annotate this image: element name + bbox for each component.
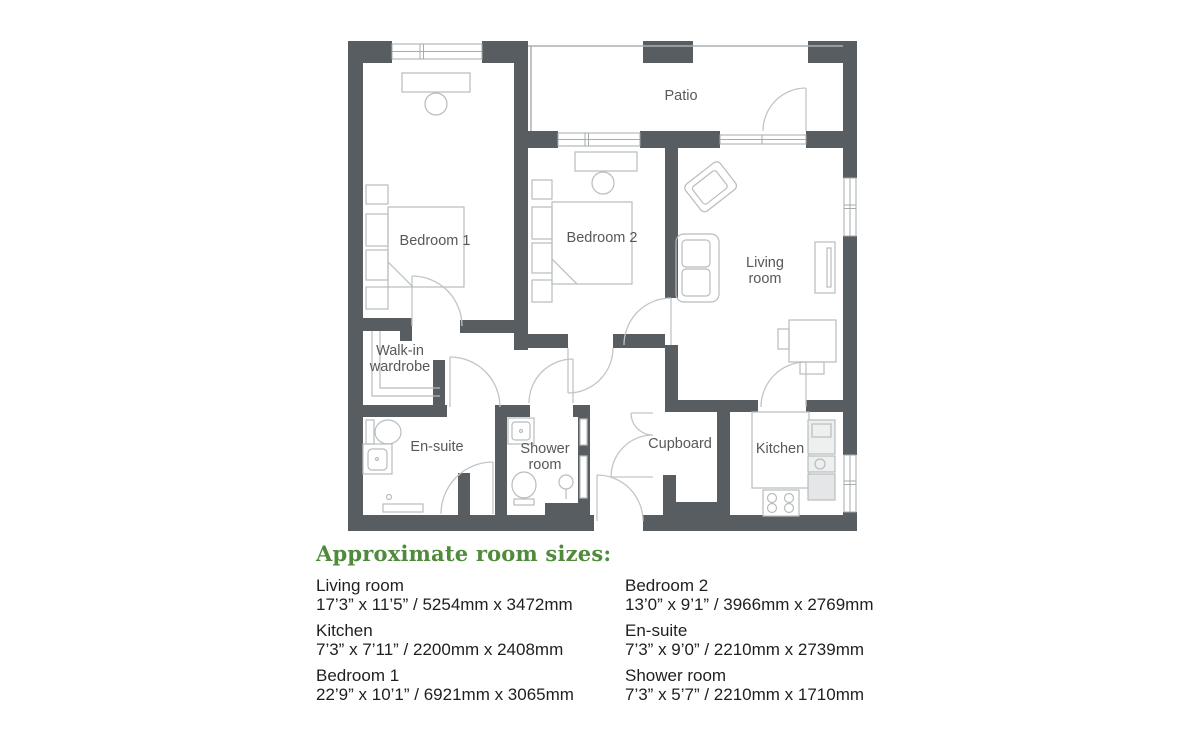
window-kitchen xyxy=(844,455,856,512)
toilet-cistern xyxy=(366,420,374,444)
tv-unit xyxy=(815,242,835,293)
bed-fold xyxy=(388,262,413,287)
sink-drain xyxy=(376,458,379,461)
bedside-unit xyxy=(366,250,388,280)
bedside-unit xyxy=(366,185,388,204)
size-item-name: Shower room xyxy=(625,666,874,685)
bedside-unit xyxy=(532,280,552,302)
kitchen-appliance xyxy=(808,474,835,500)
room-label-bedroom2: Bedroom 2 xyxy=(567,230,638,246)
desk xyxy=(575,152,637,171)
desk-pedestal xyxy=(800,362,824,374)
bedside-unit xyxy=(532,243,552,273)
wall-cupboard-left xyxy=(663,475,676,505)
size-item: Bedroom 2 13’0” x 9’1” / 3966mm x 2769mm xyxy=(625,576,874,614)
shower-label-line1: Shower xyxy=(520,441,569,457)
wall-ensuite-right xyxy=(458,473,470,517)
size-item-dimensions: 17’3” x 11’5” / 5254mm x 3472mm xyxy=(316,595,625,614)
wall-b1-bottom-right xyxy=(460,320,514,333)
bedroom1-furniture xyxy=(366,73,470,309)
living-room-label-line2: room xyxy=(746,271,784,287)
floorplan-page: Patio Bedroom 1 Bedroom 2 Living room Wa… xyxy=(0,0,1200,742)
doors xyxy=(412,88,806,521)
wardrobe-label-line2: wardrobe xyxy=(370,359,430,375)
wall-bottom-left xyxy=(348,515,594,531)
wall-wardrobe-top xyxy=(362,318,412,331)
room-label-patio: Patio xyxy=(664,88,697,104)
door-bedroom2 xyxy=(568,348,613,393)
floor-drain xyxy=(387,495,392,500)
desk-chair xyxy=(592,172,614,194)
size-item: Living room 17’3” x 11’5” / 5254mm x 347… xyxy=(316,576,625,614)
bedside-unit xyxy=(532,207,552,239)
wall-right-mid xyxy=(843,236,857,455)
living-room-label-line1: Living xyxy=(746,255,784,271)
sink-basin xyxy=(512,422,530,440)
bath-mat xyxy=(383,504,423,512)
wall-ensuite-top xyxy=(348,405,447,417)
desk xyxy=(789,320,836,362)
bed-fold xyxy=(552,259,577,284)
room-sizes-heading: Approximate room sizes: xyxy=(316,541,1086,566)
size-item: Shower room 7’3” x 5’7” / 2210mm x 1710m… xyxy=(625,666,874,704)
size-item-name: Living room xyxy=(316,576,625,595)
shower-label-line2: room xyxy=(520,457,569,473)
room-label-en-suite: En-suite xyxy=(410,439,463,455)
door-kitchen xyxy=(761,362,806,407)
towel-rail xyxy=(580,456,587,498)
toilet-cistern xyxy=(514,499,534,505)
size-item-dimensions: 7’3” x 9’0” / 2210mm x 2739mm xyxy=(625,640,874,659)
size-item-dimensions: 7’3” x 5’7” / 2210mm x 1710mm xyxy=(625,685,874,704)
bedside-unit xyxy=(366,214,388,246)
desk xyxy=(402,73,470,92)
bedside-unit xyxy=(532,180,552,199)
tv-screen xyxy=(827,248,831,287)
size-item-dimensions: 22’9” x 10’1” / 6921mm x 3065mm xyxy=(316,685,625,704)
size-item-dimensions: 7’3” x 7’11” / 2200mm x 2408mm xyxy=(316,640,625,659)
toilet-icon xyxy=(375,420,401,444)
room-sizes-column-left: Living room 17’3” x 11’5” / 5254mm x 347… xyxy=(316,576,625,711)
wall-top-b1-left xyxy=(348,41,392,63)
wall-right-bottom xyxy=(843,512,857,531)
wall-patio-bottom-3 xyxy=(806,131,843,148)
size-item: Bedroom 1 22’9” x 10’1” / 6921mm x 3065m… xyxy=(316,666,625,704)
armchair xyxy=(683,160,739,214)
wall-right-top xyxy=(843,41,857,178)
wall-cupboard-right xyxy=(717,412,730,515)
door-hall-corridor xyxy=(450,357,500,407)
wall-top-right-stub xyxy=(808,41,843,63)
sofa-cushion xyxy=(682,240,710,267)
room-sizes-block: Approximate room sizes: Living room 17’3… xyxy=(316,541,1086,711)
room-label-shower-room: Shower room xyxy=(520,441,569,473)
wall-living-bottom xyxy=(665,400,758,412)
wall-kitchen-top-right xyxy=(806,400,843,412)
window-bedroom2 xyxy=(558,133,640,146)
sink-drain xyxy=(520,430,523,433)
wall-wardrobe-return xyxy=(400,331,412,341)
size-item-name: Bedroom 2 xyxy=(625,576,874,595)
room-label-kitchen: Kitchen xyxy=(756,441,804,457)
towel-rail xyxy=(580,419,587,445)
size-item-name: Kitchen xyxy=(316,621,625,640)
room-label-bedroom1: Bedroom 1 xyxy=(400,233,471,249)
room-sizes-column-right: Bedroom 2 13’0” x 9’1” / 3966mm x 2769mm… xyxy=(625,576,874,711)
wall-b2-bottom-right xyxy=(613,334,665,348)
door-cupboard-lower xyxy=(611,435,653,477)
size-item-name: Bedroom 1 xyxy=(316,666,625,685)
wardrobe-label-line1: Walk-in xyxy=(370,343,430,359)
size-item: Kitchen 7’3” x 7’11” / 2200mm x 2408mm xyxy=(316,621,625,659)
desk-chair xyxy=(425,93,447,115)
room-label-cupboard: Cupboard xyxy=(648,436,712,452)
desk-chair xyxy=(778,329,789,349)
wall-left-outer xyxy=(348,41,363,531)
door-patio xyxy=(763,88,806,131)
wall-shower-bottom-step xyxy=(545,503,590,517)
bedside-unit xyxy=(366,287,388,309)
door-bedroom1 xyxy=(412,276,462,326)
wall-shower-left xyxy=(495,417,507,515)
toilet-icon xyxy=(512,472,536,498)
shower-head xyxy=(559,475,573,489)
size-item-dimensions: 13’0” x 9’1” / 3966mm x 2769mm xyxy=(625,595,874,614)
window-living-room xyxy=(844,178,856,236)
size-item-name: En-suite xyxy=(625,621,874,640)
room-sizes-columns: Living room 17’3” x 11’5” / 5254mm x 347… xyxy=(316,576,1086,711)
room-label-living-room: Living room xyxy=(746,255,784,287)
size-item: En-suite 7’3” x 9’0” / 2210mm x 2739mm xyxy=(625,621,874,659)
sofa-cushion xyxy=(682,269,710,296)
window-bedroom1 xyxy=(392,44,482,59)
wall-b1-b2-divider xyxy=(514,41,528,350)
kitchen-sink xyxy=(808,456,835,472)
wall-patio-bottom-1 xyxy=(528,131,558,148)
room-label-walk-in-wardrobe: Walk-in wardrobe xyxy=(370,343,430,375)
patio-french-door xyxy=(720,135,806,144)
wall-patio-bottom-2 xyxy=(640,131,720,148)
wall-b2-bottom-left xyxy=(528,334,568,348)
door-shower-room xyxy=(529,359,573,403)
kitchen-furniture xyxy=(752,412,835,516)
hob xyxy=(763,490,799,516)
door-entry xyxy=(597,475,643,521)
wall-patio-top xyxy=(643,41,693,63)
bedroom2-furniture xyxy=(532,152,637,302)
wall-wardrobe-right xyxy=(433,360,445,405)
sink-basin xyxy=(368,449,387,470)
ensuite-fixtures xyxy=(363,420,423,512)
door-cupboard-upper xyxy=(631,413,653,435)
wall-b2-living-lower xyxy=(665,345,678,400)
wall-shower-top-right xyxy=(573,405,590,417)
